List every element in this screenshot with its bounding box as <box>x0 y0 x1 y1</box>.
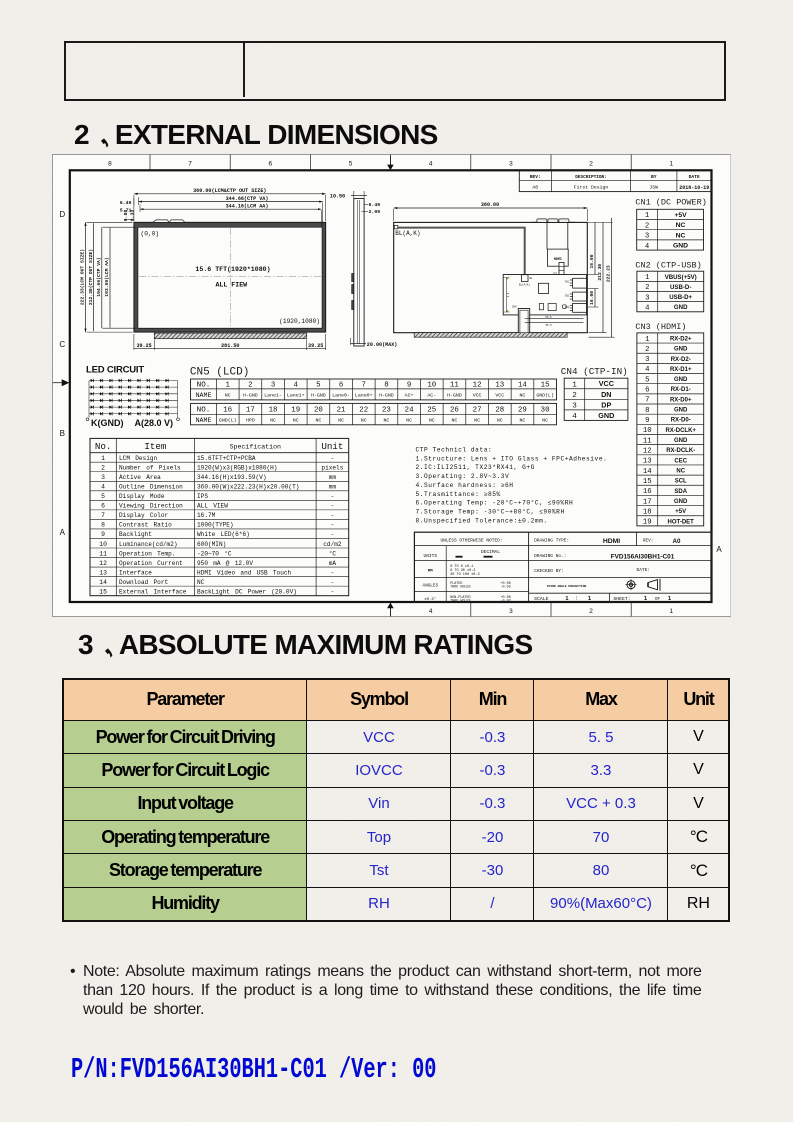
svg-text:GND: GND <box>674 347 688 353</box>
svg-text:6: 6 <box>645 387 649 395</box>
svg-text:NC: NC <box>406 418 412 424</box>
svg-text:8: 8 <box>645 407 649 415</box>
svg-text:360.00(W)x222.23(H)x20.00(T): 360.00(W)x222.23(H)x20.00(T) <box>197 484 299 491</box>
svg-text:NAME: NAME <box>195 417 211 424</box>
svg-text:RX-D2+: RX-D2+ <box>669 336 691 342</box>
svg-text:DRAWING No.:: DRAWING No.: <box>534 553 566 559</box>
svg-text:VCC: VCC <box>598 379 613 388</box>
svg-text:13: 13 <box>495 381 504 389</box>
svg-text:RX-D1-: RX-D1- <box>670 387 690 393</box>
svg-text:4: 4 <box>572 413 577 421</box>
svg-text:1: 1 <box>225 381 230 389</box>
svg-text:1: 1 <box>643 596 646 602</box>
svg-text:LED CIRCUIT: LED CIRCUIT <box>86 364 144 375</box>
svg-text:6.Operating Temp: -20°C~+70°C,: 6.Operating Temp: -20°C~+70°C, ≤90%RH <box>415 500 573 507</box>
svg-text:17: 17 <box>245 407 254 415</box>
svg-text:3: 3 <box>509 608 513 615</box>
svg-text:NC: NC <box>675 222 685 229</box>
svg-text:344.66(CTP VA): 344.66(CTP VA) <box>225 196 268 202</box>
svg-text:GND: GND <box>674 438 688 444</box>
svg-text:222.33(LCM OUT SIZE): 222.33(LCM OUT SIZE) <box>79 249 85 305</box>
svg-text:-: - <box>330 522 334 529</box>
svg-text:2: 2 <box>644 222 648 230</box>
svg-text:A: A <box>59 528 65 537</box>
svg-text:3: 3 <box>101 474 105 481</box>
svg-text:-: - <box>330 455 334 462</box>
svg-text:16.00: 16.00 <box>588 291 594 305</box>
svg-text:1: 1 <box>565 596 568 602</box>
svg-text:Lane1+: Lane1+ <box>286 393 304 399</box>
svg-text:4: 4 <box>428 161 432 168</box>
svg-text:GND: GND <box>674 499 688 505</box>
svg-text:24: 24 <box>404 407 413 415</box>
svg-text:NAME: NAME <box>195 392 211 399</box>
svg-text:Number of Pixels: Number of Pixels <box>119 465 181 472</box>
svg-text:15.6TFT+CTP+PCBA: 15.6TFT+CTP+PCBA <box>197 455 256 462</box>
svg-text:+5V: +5V <box>674 212 687 219</box>
svg-text:VBUS(+5V): VBUS(+5V) <box>664 274 696 281</box>
svg-text:HDMI: HDMI <box>602 538 619 545</box>
svg-text:10: 10 <box>99 541 107 548</box>
svg-text:8: 8 <box>101 522 105 529</box>
svg-text:REV:: REV: <box>529 174 540 180</box>
svg-text:SCL: SCL <box>674 479 686 485</box>
svg-text:Luminance(cd/m2): Luminance(cd/m2) <box>119 541 178 548</box>
svg-text:7: 7 <box>101 512 105 519</box>
svg-text:16: 16 <box>223 407 232 415</box>
svg-text:AC-: AC- <box>427 393 436 399</box>
svg-text:7: 7 <box>188 161 192 168</box>
svg-text:Display Color: Display Color <box>119 512 168 519</box>
svg-text:H-GND: H-GND <box>311 393 326 399</box>
svg-text:11: 11 <box>99 550 107 557</box>
svg-text:NC: NC <box>474 418 480 424</box>
svg-text:Backlight: Backlight <box>119 531 152 538</box>
svg-text:NC: NC <box>496 418 502 424</box>
svg-text:DP: DP <box>601 400 611 409</box>
svg-text:A0: A0 <box>532 185 538 191</box>
svg-text:15: 15 <box>99 588 107 595</box>
svg-text:9: 9 <box>645 417 649 425</box>
svg-text:VCC: VCC <box>495 393 504 399</box>
svg-text:External Interface: External Interface <box>119 588 187 595</box>
svg-text:18: 18 <box>268 407 277 415</box>
svg-text:ALL FIEW: ALL FIEW <box>215 281 247 288</box>
svg-text:30: 30 <box>540 407 549 415</box>
svg-text:2018-10-19: 2018-10-19 <box>679 185 709 191</box>
svg-text:CEC: CEC <box>674 458 687 464</box>
svg-text:Display Mode: Display Mode <box>119 493 165 500</box>
svg-text:mm: mm <box>328 484 336 491</box>
svg-text:DECIMAL: DECIMAL <box>481 549 500 555</box>
svg-text:BL(A,K): BL(A,K) <box>395 230 420 237</box>
svg-text:14: 14 <box>642 468 651 476</box>
svg-text:FVD156AI30BH1-C01: FVD156AI30BH1-C01 <box>610 553 674 560</box>
svg-text:2.IC:ILI2511, TX23*RX41, G+G: 2.IC:ILI2511, TX23*RX41, G+G <box>415 464 534 471</box>
svg-text:2.09: 2.09 <box>368 209 380 215</box>
svg-text:THRU HOLES: THRU HOLES <box>450 600 470 604</box>
svg-text:2: 2 <box>101 465 105 472</box>
svg-text:HPD: HPD <box>245 418 254 424</box>
svg-text:H-GND: H-GND <box>243 393 258 399</box>
svg-text:RX-D1+: RX-D1+ <box>669 367 691 373</box>
svg-text:3: 3 <box>509 161 513 168</box>
svg-text:8: 8 <box>108 161 112 168</box>
svg-text:LCM Design: LCM Design <box>119 455 158 462</box>
svg-text:Interface: Interface <box>119 569 152 576</box>
svg-text:6.49: 6.49 <box>119 200 131 206</box>
svg-text:1: 1 <box>645 336 650 344</box>
svg-text:DRAWING TYPE:: DRAWING TYPE: <box>534 538 569 544</box>
svg-text:HDMI Video and USB Touch: HDMI Video and USB Touch <box>197 569 292 576</box>
svg-text:DATE:: DATE: <box>636 567 650 573</box>
svg-text:-: - <box>330 503 334 510</box>
svg-text:-: - <box>330 579 334 586</box>
svg-text:281.50: 281.50 <box>221 343 239 349</box>
svg-text:ALL VIEW: ALL VIEW <box>197 503 228 510</box>
svg-text:11: 11 <box>642 437 651 445</box>
svg-text:4: 4 <box>293 381 298 389</box>
svg-text:HOT-DET: HOT-DET <box>667 519 694 525</box>
svg-text:5: 5 <box>316 381 320 389</box>
svg-text:2: 2 <box>572 392 577 400</box>
svg-text:C: C <box>59 340 65 349</box>
svg-text:Download Port: Download Port <box>119 579 168 586</box>
svg-text:3: 3 <box>644 233 648 241</box>
svg-text:First Design: First Design <box>573 185 608 191</box>
svg-text:1.Structure: Lens + ITO Glass: 1.Structure: Lens + ITO Glass + FPC+Adhe… <box>415 455 607 462</box>
svg-text:13: 13 <box>99 569 107 576</box>
svg-text:NC: NC <box>519 418 525 424</box>
svg-text:3: 3 <box>645 356 649 364</box>
svg-text:NC: NC <box>542 418 548 424</box>
svg-text:7: 7 <box>645 397 649 405</box>
svg-text:9.33: 9.33 <box>129 210 135 222</box>
svg-text:30 TO 100 ±0.3: 30 TO 100 ±0.3 <box>450 573 479 577</box>
svg-text:4.Surface hardness: ≥6H: 4.Surface hardness: ≥6H <box>415 482 513 489</box>
svg-text:A(28.0 V): A(28.0 V) <box>134 418 173 428</box>
svg-text:15: 15 <box>540 381 549 389</box>
svg-text:212.30(CTP OUT SIZE): 212.30(CTP OUT SIZE) <box>87 249 93 305</box>
svg-text:Contrast Ratio: Contrast Ratio <box>119 522 172 529</box>
svg-text:CN1: CN1 <box>564 281 569 284</box>
svg-text:GND(L): GND(L) <box>218 418 236 424</box>
svg-text:3: 3 <box>572 403 577 411</box>
svg-text:NO.: NO. <box>196 381 210 389</box>
svg-text:White LED(6*6): White LED(6*6) <box>197 531 250 538</box>
svg-text:4: 4 <box>645 366 650 374</box>
svg-text:NC: NC <box>315 418 321 424</box>
svg-text:NC: NC <box>383 418 389 424</box>
svg-text:194.66(CTP VA): 194.66(CTP VA) <box>96 257 102 297</box>
svg-text:NC: NC <box>360 418 366 424</box>
svg-text:Operation Temp.: Operation Temp. <box>119 550 175 557</box>
svg-text:UNITS: UNITS <box>423 553 437 559</box>
svg-text:9: 9 <box>101 531 105 538</box>
svg-text:D: D <box>59 210 65 219</box>
svg-text:MM: MM <box>427 570 432 574</box>
svg-text:29: 29 <box>518 407 527 415</box>
svg-text:NC: NC <box>224 393 230 399</box>
svg-text:19: 19 <box>642 519 651 527</box>
svg-text:6: 6 <box>338 381 342 389</box>
svg-text:CN2 (CTP-USB): CN2 (CTP-USB) <box>635 260 701 270</box>
svg-text:VCC: VCC <box>472 393 481 399</box>
svg-text:CN2: CN2 <box>564 295 569 298</box>
svg-text:GND(L): GND(L) <box>536 393 554 399</box>
svg-text:4: 4 <box>645 305 650 313</box>
svg-text:GND: GND <box>673 304 687 311</box>
svg-text:13: 13 <box>642 458 651 466</box>
svg-text:2: 2 <box>645 284 649 292</box>
svg-text:7: 7 <box>361 381 365 389</box>
svg-text:5: 5 <box>348 161 352 168</box>
svg-text:(0,0): (0,0) <box>140 230 159 237</box>
svg-text:1920(W)x3(RGB)x1080(H): 1920(W)x3(RGB)x1080(H) <box>197 465 277 472</box>
svg-text:12: 12 <box>472 381 481 389</box>
svg-text:BL(A/K): BL(A/K) <box>519 283 530 287</box>
svg-text:GND: GND <box>598 411 614 420</box>
svg-text:4: 4 <box>101 484 105 491</box>
svg-text:1: 1 <box>667 596 670 602</box>
svg-text:20: 20 <box>313 407 322 415</box>
svg-text:(1920,1080): (1920,1080) <box>279 318 320 325</box>
svg-text:GND: GND <box>672 243 687 250</box>
svg-text:1: 1 <box>587 596 590 602</box>
svg-text:mm: mm <box>328 474 336 481</box>
svg-text:19: 19 <box>291 407 300 415</box>
svg-text:5.Trasmittance: ≥85%: 5.Trasmittance: ≥85% <box>415 491 500 498</box>
svg-text:-: - <box>330 588 334 595</box>
svg-text:SDA: SDA <box>674 489 687 495</box>
svg-text:BackLight DC Power (28.0V): BackLight DC Power (28.0V) <box>197 588 297 595</box>
svg-text:JSW: JSW <box>649 185 658 191</box>
svg-text:K(GND): K(GND) <box>91 418 124 428</box>
svg-text:5: 5 <box>645 376 649 384</box>
svg-text:5: 5 <box>101 493 105 500</box>
svg-text:CN5: CN5 <box>511 306 516 309</box>
svg-text:+5V: +5V <box>675 509 686 515</box>
svg-text:193.59(LCM AA): 193.59(LCM AA) <box>104 257 110 297</box>
svg-text:NC: NC <box>292 418 298 424</box>
svg-text:27: 27 <box>472 407 481 415</box>
svg-text:3.5: 3.5 <box>506 292 509 297</box>
svg-text:6: 6 <box>101 503 105 510</box>
svg-text:1: 1 <box>101 455 105 462</box>
svg-text:NC: NC <box>675 232 685 239</box>
svg-text:1: 1 <box>572 381 577 389</box>
svg-text:4: 4 <box>428 608 432 615</box>
svg-text:3: 3 <box>270 381 274 389</box>
svg-text:Lane0+: Lane0+ <box>354 393 372 399</box>
svg-text:-20~70 °C: -20~70 °C <box>197 550 232 557</box>
svg-text:AC+: AC+ <box>404 393 413 399</box>
svg-text:1: 1 <box>644 212 649 220</box>
svg-text:360.00(LCM&CTP OUT SIZE): 360.00(LCM&CTP OUT SIZE) <box>193 188 266 194</box>
svg-text:600(MIN): 600(MIN) <box>197 541 226 548</box>
svg-text:6: 6 <box>268 161 272 168</box>
svg-text:10.50: 10.50 <box>329 193 344 199</box>
svg-text:18: 18 <box>642 508 651 516</box>
svg-text:DESCRIPTION:: DESCRIPTION: <box>575 175 607 180</box>
svg-text:CN1 (DC POWER): CN1 (DC POWER) <box>635 198 706 208</box>
svg-text:NC: NC <box>270 418 276 424</box>
svg-text:Active Area: Active Area <box>119 474 161 481</box>
svg-text:Unit: Unit <box>321 441 343 452</box>
svg-text:212.30: 212.30 <box>596 264 602 281</box>
svg-text:RX-DCLK-: RX-DCLK- <box>666 448 695 454</box>
svg-text:°C: °C <box>328 550 336 557</box>
svg-text:BL: BL <box>529 277 533 280</box>
svg-text:10: 10 <box>642 427 651 435</box>
svg-text:360.00: 360.00 <box>480 202 498 208</box>
svg-text:15: 15 <box>642 478 651 486</box>
svg-text:Operation Current: Operation Current <box>119 560 183 567</box>
svg-text:12: 12 <box>99 560 107 567</box>
svg-text:-: - <box>330 569 334 576</box>
svg-text:mA: mA <box>328 560 336 567</box>
svg-text:26: 26 <box>449 407 458 415</box>
svg-text:11: 11 <box>449 381 458 389</box>
svg-text:Lane0-: Lane0- <box>332 393 350 399</box>
svg-text:14: 14 <box>518 381 527 389</box>
svg-text:H-GND: H-GND <box>379 393 394 399</box>
svg-text:2: 2 <box>589 608 593 615</box>
svg-text:cd/m2: cd/m2 <box>323 541 342 548</box>
svg-text:16: 16 <box>642 488 651 496</box>
svg-text:22: 22 <box>359 407 368 415</box>
svg-text:4: 4 <box>644 243 649 251</box>
svg-text:2: 2 <box>589 161 593 168</box>
svg-text:GND: GND <box>674 377 688 383</box>
svg-text:25: 25 <box>427 407 436 415</box>
svg-text:3: 3 <box>645 294 649 302</box>
svg-text:28: 28 <box>495 407 504 415</box>
svg-text:1: 1 <box>669 608 673 615</box>
svg-text:23: 23 <box>381 407 390 415</box>
svg-text:1: 1 <box>669 161 673 168</box>
svg-text:±0.5°: ±0.5° <box>424 597 436 602</box>
svg-text:16.00: 16.00 <box>588 254 594 268</box>
svg-text:A: A <box>716 545 722 554</box>
svg-text:12: 12 <box>642 447 651 455</box>
svg-text:USB-D-: USB-D- <box>670 284 691 291</box>
svg-text:NC: NC <box>676 469 685 475</box>
svg-text:CTP Technicl data:: CTP Technicl data: <box>415 447 492 454</box>
svg-text:CN3 (HDMI): CN3 (HDMI) <box>635 322 686 332</box>
svg-text:NC: NC <box>197 579 205 586</box>
svg-text:RX-DCLK+: RX-DCLK+ <box>665 428 696 434</box>
svg-text:NC: NC <box>338 418 344 424</box>
svg-text:8: 8 <box>384 381 388 389</box>
svg-text:2: 2 <box>645 346 649 354</box>
svg-text:1000(TYPE): 1000(TYPE) <box>197 522 234 529</box>
svg-text:NC: NC <box>428 418 434 424</box>
svg-text:RX-D0-: RX-D0- <box>670 418 690 424</box>
svg-text:Item: Item <box>144 441 167 452</box>
svg-text:RX-D0+: RX-D0+ <box>669 397 691 403</box>
svg-text:UNLESS OTHERWISE NOTED:: UNLESS OTHERWISE NOTED: <box>440 538 502 544</box>
svg-text:9: 9 <box>406 381 410 389</box>
svg-text:DN: DN <box>601 390 611 399</box>
svg-text:USB-D+: USB-D+ <box>669 294 692 301</box>
svg-text:-0.03: -0.03 <box>500 586 510 590</box>
svg-text:950 mA @ 12.0V: 950 mA @ 12.0V <box>197 560 253 567</box>
svg-text:-: - <box>330 531 334 538</box>
svg-text:39.25: 39.25 <box>308 343 323 349</box>
svg-text:THIRD ANGLE PROJECTION: THIRD ANGLE PROJECTION <box>546 585 586 588</box>
svg-text:RX-D2-: RX-D2- <box>670 357 690 363</box>
svg-text:3.Operating: 2.8V~3.3V: 3.Operating: 2.8V~3.3V <box>415 473 509 480</box>
svg-text:No.: No. <box>94 441 111 452</box>
svg-text:SHEET:: SHEET: <box>613 596 630 602</box>
svg-text:Lane1-: Lane1- <box>264 393 282 399</box>
svg-text:CN3: CN3 <box>564 306 569 309</box>
svg-text:BY: BY <box>650 174 656 180</box>
svg-text:NC: NC <box>451 418 457 424</box>
svg-text:15.6 TFT(1920*1080): 15.6 TFT(1920*1080) <box>195 266 270 273</box>
svg-text:17: 17 <box>642 498 651 506</box>
svg-text:SCALE: SCALE <box>534 596 549 602</box>
svg-text:B: B <box>59 429 64 438</box>
svg-text:20.00(MAX): 20.00(MAX) <box>366 342 397 348</box>
svg-text:A0: A0 <box>672 538 680 545</box>
svg-text:Outline Dimension: Outline Dimension <box>119 484 183 491</box>
svg-text:Viewing Direction: Viewing Direction <box>119 503 183 510</box>
svg-text:Specification: Specification <box>229 444 280 451</box>
svg-text:CN5 (LCD): CN5 (LCD) <box>189 367 248 379</box>
svg-text:35.5: 35.5 <box>545 324 552 327</box>
svg-text:GND: GND <box>674 408 688 414</box>
svg-text:7.Storage Temp: -30°C~+80°C, ≤: 7.Storage Temp: -30°C~+80°C, ≤90%RH <box>415 508 564 515</box>
svg-text:REV:: REV: <box>642 539 653 544</box>
svg-text:16.7M: 16.7M <box>197 512 216 519</box>
svg-text:OF: OF <box>654 598 660 602</box>
svg-text:-0.03: -0.03 <box>500 600 510 604</box>
svg-text:CN4 (CTP-IN): CN4 (CTP-IN) <box>560 366 627 377</box>
svg-text:THRU HOLES: THRU HOLES <box>450 586 470 590</box>
svg-text:55.5: 55.5 <box>545 316 552 319</box>
svg-text:CHECKED BY:: CHECKED BY: <box>534 568 564 574</box>
svg-text:6.49: 6.49 <box>368 202 380 208</box>
svg-text:10: 10 <box>427 381 436 389</box>
svg-text:344.16(LCM AA): 344.16(LCM AA) <box>225 203 268 209</box>
svg-text:21: 21 <box>336 407 345 415</box>
svg-text:2: 2 <box>248 381 252 389</box>
svg-text:pixels: pixels <box>321 465 343 472</box>
svg-text:ANGLES: ANGLES <box>422 583 438 588</box>
svg-text:-: - <box>330 493 334 500</box>
svg-text:NC: NC <box>519 393 525 399</box>
svg-text:IPS: IPS <box>197 493 208 500</box>
svg-text:H-GND: H-GND <box>447 393 462 399</box>
svg-text:14: 14 <box>99 579 107 586</box>
svg-text:344.16(H)x193.59(V): 344.16(H)x193.59(V) <box>197 474 266 481</box>
svg-text::: : <box>574 596 577 602</box>
svg-text:-: - <box>330 512 334 519</box>
svg-text:8.Unspecified Tolerance:±0.2mm: 8.Unspecified Tolerance:±0.2mm. <box>415 517 547 524</box>
svg-text:222.23: 222.23 <box>605 265 611 282</box>
svg-text:1: 1 <box>645 274 650 282</box>
svg-text:NO.: NO. <box>196 407 210 415</box>
svg-text:HDMI: HDMI <box>553 258 561 262</box>
svg-text:DATE: DATE <box>688 174 699 180</box>
svg-text:39.25: 39.25 <box>136 343 151 349</box>
